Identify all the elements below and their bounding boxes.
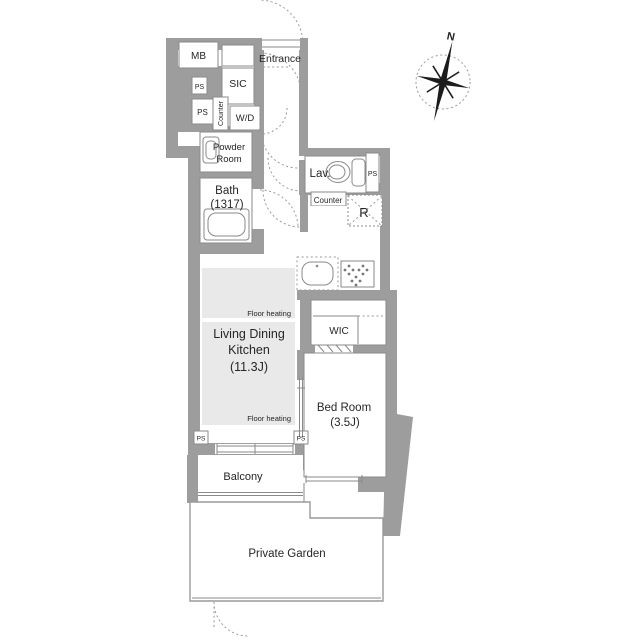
counter-label: Counter [314,196,343,205]
floor-plan-svg: N MB SIC Entrance PS PS Counter W/D Powd… [0,0,640,640]
private-garden-label: Private Garden [248,548,325,560]
hallway-floor [264,44,299,254]
garden-gate-swing-arc [214,602,248,636]
ps-label-2: PS [197,108,208,117]
floor-heating-label-bottom: Floor heating [247,414,291,423]
counter-vertical-label: Counter [218,100,225,126]
floor-plan: N MB SIC Entrance PS PS Counter W/D Powd… [0,0,640,640]
bath-label-line1: Bath [215,185,239,197]
entrance-door-swing-arc [259,0,303,44]
sic-upper-closet [222,45,254,66]
lav-label: Lav. [310,168,331,180]
entrance-label: Entrance [259,53,301,65]
compass-needles [408,35,479,127]
ldk-label-line3: (11.3J) [230,360,268,374]
wd-label: W/D [236,113,255,124]
compass-north-label: N [446,30,456,43]
sic-label: SIC [229,78,247,90]
ps-label-3: PS [368,171,378,178]
bedroom-label-line2: (3.5J) [330,417,360,429]
mb-label: MB [191,51,206,62]
bedroom-label-line1: Bed Room [317,402,371,414]
ps-label-4: PS [197,436,206,443]
ps-label-5: PS [297,436,306,443]
wic-label: WIC [329,326,348,337]
stove-icon [341,261,374,287]
compass-rose: N [408,30,479,127]
ldk-label-line2: Kitchen [228,343,270,357]
balcony-label: Balcony [223,471,263,483]
refrigerator-label: R [359,205,368,220]
bathtub-icon [204,209,249,240]
powder-room-label-line2: Room [216,154,241,165]
floor-heating-label-top: Floor heating [247,309,291,318]
powder-room-label-line1: Powder [213,142,245,153]
ps-label-1: PS [195,84,205,91]
bath-label-line2: (1317) [210,199,243,211]
ldk-label-line1: Living Dining [213,327,285,341]
bedroom-floor [304,353,386,477]
wic-floor [311,300,386,345]
